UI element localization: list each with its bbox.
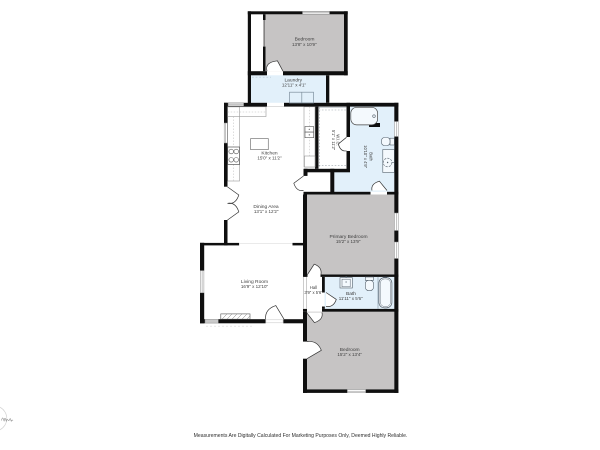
svg-text:12'11" x 4'1": 12'11" x 4'1" xyxy=(282,82,307,87)
svg-text:Bath: Bath xyxy=(368,152,373,161)
svg-text:15'0" x 11'2": 15'0" x 11'2" xyxy=(257,156,282,161)
svg-text:16'9" x 12'10": 16'9" x 12'10" xyxy=(241,284,269,289)
svg-text:Measurements Are Digitally Cal: Measurements Are Digitally Calculated Fo… xyxy=(194,433,408,439)
svg-text:3'9" x 5'6": 3'9" x 5'6" xyxy=(304,290,323,295)
svg-text:10'10" x 4'9": 10'10" x 4'9" xyxy=(363,145,368,168)
svg-text:5'1" x 11'2": 5'1" x 11'2" xyxy=(331,130,336,151)
svg-text:13'8" x 10'9": 13'8" x 10'9" xyxy=(292,42,317,47)
svg-text:11'11" x 5'6": 11'11" x 5'6" xyxy=(339,296,363,301)
svg-text:15'2" x 13'4": 15'2" x 13'4" xyxy=(337,352,362,357)
svg-text:13'1" x 12'2": 13'1" x 12'2" xyxy=(254,209,279,214)
svg-text:15'2" x 13'9": 15'2" x 13'9" xyxy=(336,239,361,244)
